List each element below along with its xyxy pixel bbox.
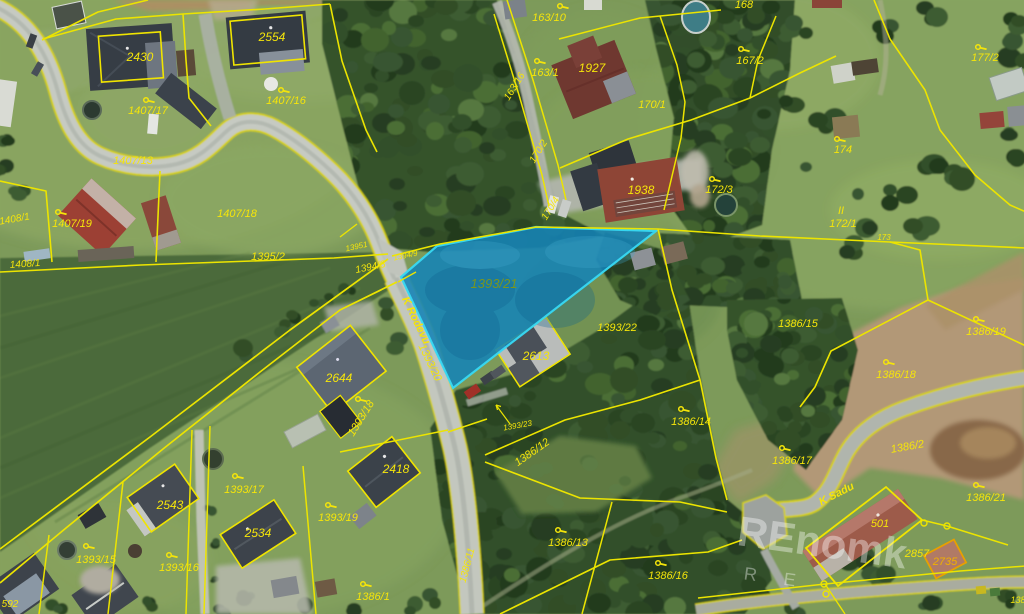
svg-text:2543: 2543 [156,498,184,512]
svg-text:172/3: 172/3 [705,184,733,196]
svg-text:1407/13: 1407/13 [113,155,154,167]
svg-text:138: 138 [1010,595,1024,605]
svg-text:1407/17: 1407/17 [128,105,169,117]
svg-text:1393/19: 1393/19 [318,512,358,524]
svg-text:1393/16: 1393/16 [159,562,200,574]
svg-text:1386/15: 1386/15 [778,318,819,330]
svg-text:174: 174 [834,144,852,156]
svg-text:1938: 1938 [628,183,655,197]
svg-text:II: II [838,205,844,217]
svg-text:1407/16: 1407/16 [266,95,307,107]
svg-text:2857: 2857 [904,548,930,560]
svg-text:1386/19: 1386/19 [966,326,1006,338]
svg-text:592: 592 [2,599,19,610]
svg-text:1395/2: 1395/2 [251,251,285,263]
svg-text:1386/16: 1386/16 [648,570,689,582]
svg-text:173: 173 [877,233,891,242]
svg-text:1386/1: 1386/1 [356,591,390,603]
svg-text:1408/1: 1408/1 [9,258,40,271]
svg-text:177/2: 177/2 [971,52,999,64]
svg-text:1386/17: 1386/17 [772,455,813,467]
svg-text:1386/18: 1386/18 [876,369,917,381]
svg-text:168: 168 [735,0,754,11]
svg-text:2613: 2613 [522,349,550,363]
svg-text:1393/22: 1393/22 [597,322,637,334]
svg-text:170/1: 170/1 [638,99,666,111]
svg-text:2534: 2534 [244,526,272,540]
svg-text:167/2: 167/2 [736,55,764,67]
svg-text:2735: 2735 [932,556,958,568]
svg-text:2554: 2554 [258,30,286,44]
svg-text:1386/21: 1386/21 [966,492,1006,504]
svg-text:1407/19: 1407/19 [52,218,92,230]
svg-text:2430: 2430 [126,50,154,64]
svg-text:1393/21: 1393/21 [471,276,518,291]
svg-text:1927: 1927 [579,61,607,75]
svg-text:1407/18: 1407/18 [217,208,258,220]
svg-text:163/1: 163/1 [531,67,559,79]
svg-text:1386/14: 1386/14 [671,416,711,428]
svg-text:1393/15: 1393/15 [76,554,117,566]
svg-text:2644: 2644 [325,371,353,385]
svg-text:1386/13: 1386/13 [548,537,589,549]
svg-text:2418: 2418 [382,462,410,476]
svg-text:1393/17: 1393/17 [224,484,265,496]
svg-text:172/1: 172/1 [829,218,857,230]
svg-text:163/10: 163/10 [532,12,567,24]
